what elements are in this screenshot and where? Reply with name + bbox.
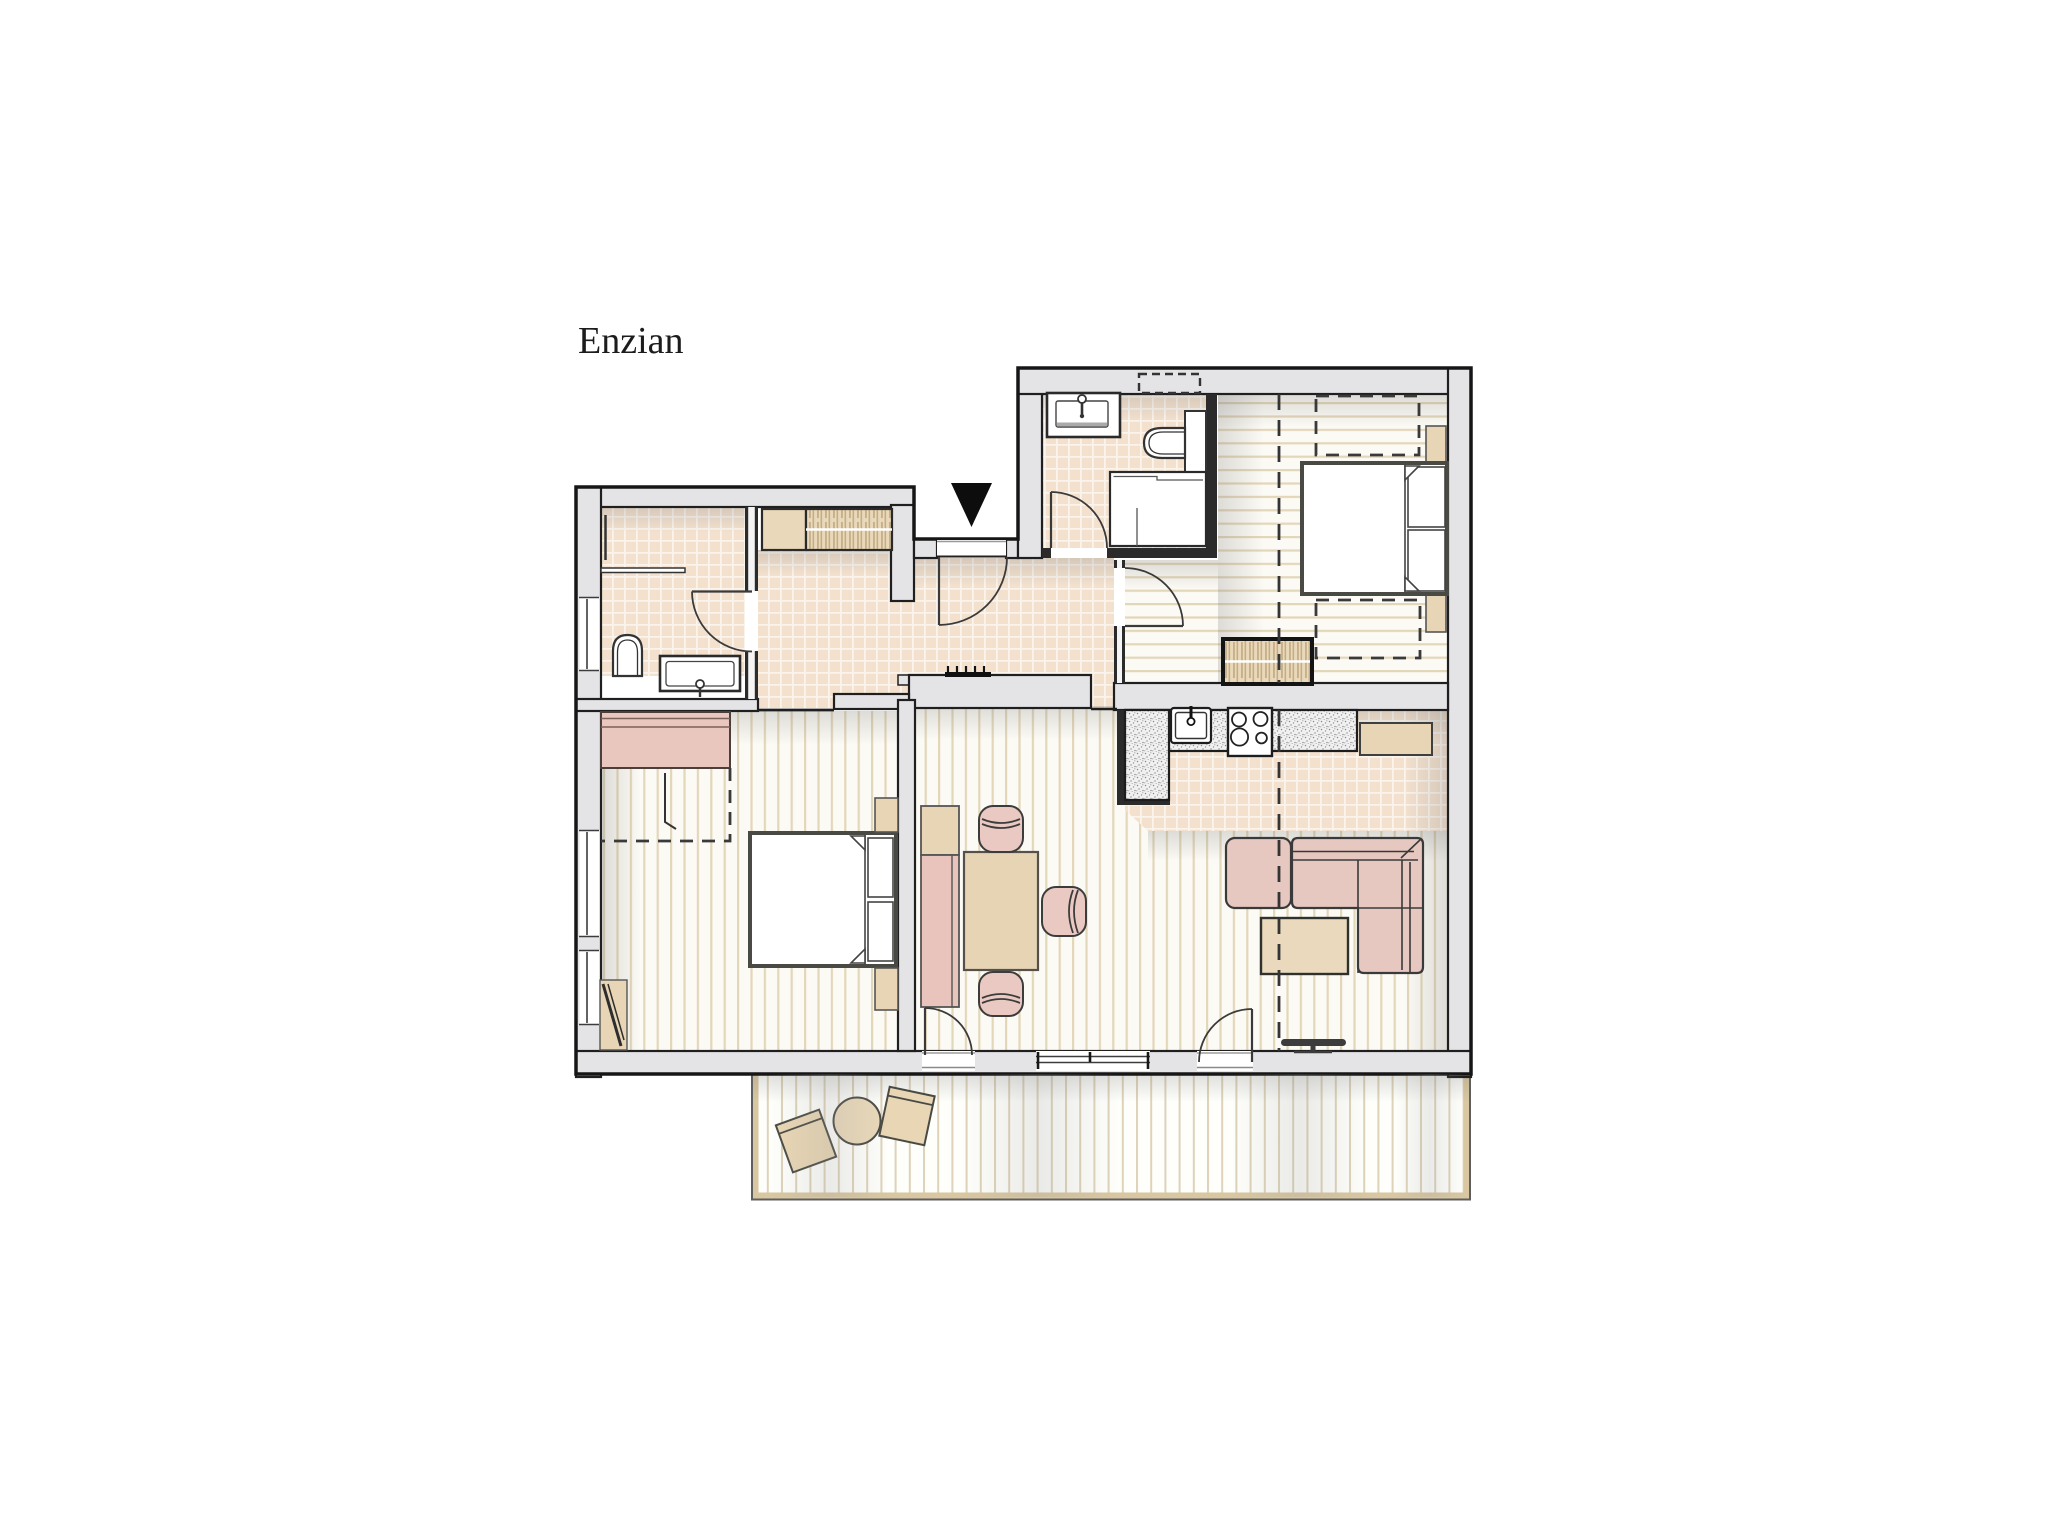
svg-text:Enzian: Enzian — [578, 320, 684, 362]
